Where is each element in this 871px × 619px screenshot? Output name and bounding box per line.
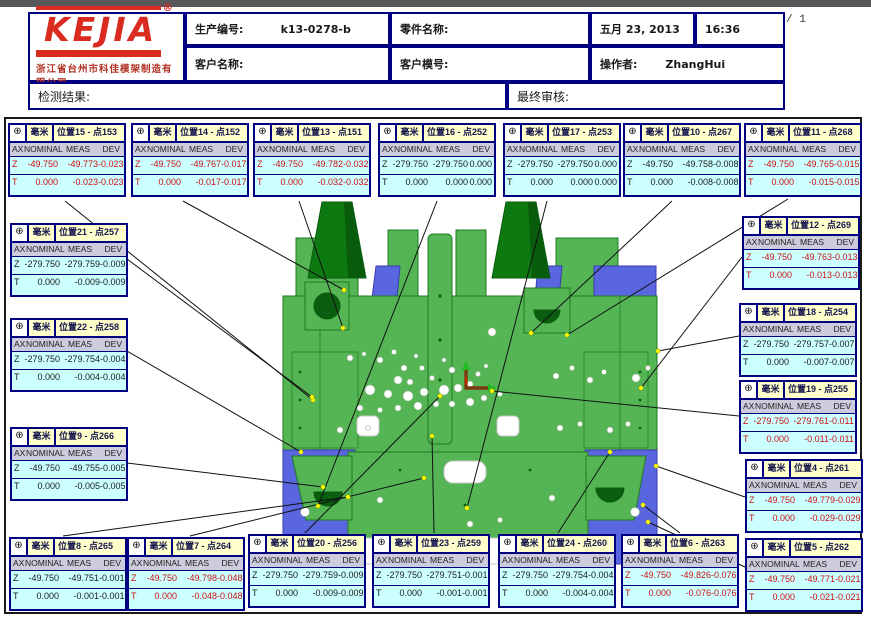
col-nominal: NOMINAL — [26, 338, 68, 351]
measured-value: -0.004 — [60, 370, 100, 387]
unit-label: 毫米 — [764, 540, 791, 556]
measurement-row-t: T 0.000 -0.015 -0.015 — [746, 174, 860, 192]
deviation-value: -0.007 — [829, 337, 857, 354]
measurement-row-t: T 0.000 -0.005 -0.005 — [12, 478, 126, 496]
col-dev: DEV — [104, 243, 126, 256]
deviation-value: -0.009 — [338, 586, 366, 603]
col-dev: DEV — [102, 143, 124, 156]
col-dev: DEV — [225, 143, 247, 156]
nominal-value: 0.000 — [22, 370, 60, 387]
col-dev: DEV — [221, 557, 243, 570]
deviation-value: -0.015 — [834, 157, 862, 174]
measurement-box: ⊕ 毫米 位置6 - 点263 AX NOMINAL MEAS DEV Z -4… — [621, 534, 739, 608]
col-meas: MEAS — [561, 143, 597, 156]
deviation-value: -0.017 — [221, 175, 249, 192]
col-meas: MEAS — [189, 143, 225, 156]
col-nominal: NOMINAL — [761, 479, 803, 492]
measurement-row-z: Z -49.750 -49.798 -0.048 — [129, 570, 243, 588]
col-nominal: NOMINAL — [264, 554, 306, 567]
measurement-box: ⊕ 毫米 位置20 - 点256 AX NOMINAL MEAS DEV Z -… — [248, 534, 366, 608]
col-dev: DEV — [466, 554, 488, 567]
measurement-row-t: T 0.000 -0.023 -0.023 — [10, 174, 124, 192]
measured-value: -279.757 — [789, 337, 829, 354]
column-headers: AX NOMINAL MEAS DEV — [744, 236, 858, 249]
column-headers: AX NOMINAL MEAS DEV — [374, 554, 488, 567]
deviation-value: -0.004 — [588, 586, 616, 603]
deviation-value: -0.008 — [713, 157, 741, 174]
col-dev: DEV — [472, 143, 494, 156]
position-symbol-icon: ⊕ — [10, 125, 27, 141]
col-dev: DEV — [104, 338, 126, 351]
deviation-value: 0.000 — [468, 157, 494, 174]
measured-value: -0.015 — [794, 175, 834, 192]
measured-value: -49.767 — [181, 157, 221, 174]
position-symbol-icon: ⊕ — [741, 305, 758, 321]
measured-value: -49.755 — [60, 461, 100, 478]
position-title: 位置12 - 点269 — [788, 218, 858, 234]
deviation-value: -0.008 — [713, 175, 741, 192]
measured-value: -279.759 — [60, 257, 100, 274]
nominal-value: 0.000 — [754, 268, 792, 285]
measurement-box-header: ⊕ 毫米 位置9 - 点266 — [12, 429, 126, 447]
measurement-box: ⊕ 毫米 位置10 - 点267 AX NOMINAL MEAS DEV Z -… — [623, 123, 741, 197]
measurement-row-z: Z -279.750 -279.754 -0.004 — [500, 567, 614, 585]
nominal-value: -49.750 — [757, 572, 795, 589]
deviation-value: -0.023 — [98, 157, 126, 174]
measurement-boxes-layer: ⊕ 毫米 位置15 - 点153 AX NOMINAL MEAS DEV Z -… — [0, 0, 871, 619]
nominal-value: -279.750 — [384, 568, 422, 585]
unit-label: 毫米 — [28, 539, 55, 555]
measured-value: -0.023 — [58, 175, 98, 192]
unit-label: 毫米 — [758, 382, 785, 398]
axis-name: Z — [250, 568, 260, 585]
axis-name: T — [133, 175, 143, 192]
measurement-box-header: ⊕ 毫米 位置10 - 点267 — [625, 125, 739, 143]
measured-value: -279.754 — [548, 568, 588, 585]
measurement-box-header: ⊕ 毫米 位置15 - 点153 — [10, 125, 124, 143]
nominal-value: 0.000 — [751, 432, 789, 449]
measurement-box: ⊕ 毫米 位置11 - 点268 AX NOMINAL MEAS DEV Z -… — [744, 123, 862, 197]
measurement-row-z: Z -279.750 -279.759 -0.009 — [12, 256, 126, 274]
col-nominal: NOMINAL — [24, 143, 66, 156]
col-ax: AX — [741, 400, 755, 413]
col-meas: MEAS — [802, 143, 838, 156]
measured-value: -49.826 — [671, 568, 711, 585]
col-nominal: NOMINAL — [26, 243, 68, 256]
axis-name: T — [744, 268, 754, 285]
measurement-row-t: T 0.000 -0.032 -0.032 — [255, 174, 369, 192]
nominal-value: 0.000 — [265, 175, 303, 192]
col-nominal: NOMINAL — [25, 557, 67, 570]
col-dev: DEV — [838, 143, 860, 156]
deviation-value: -0.076 — [711, 586, 739, 603]
col-ax: AX — [12, 447, 26, 460]
measurement-row-t: T 0.000 -0.076 -0.076 — [623, 585, 737, 603]
measurement-box: ⊕ 毫米 位置4 - 点261 AX NOMINAL MEAS DEV Z -4… — [745, 459, 863, 533]
unit-label: 毫米 — [763, 125, 790, 141]
measurement-row-t: T 0.000 0.000 0.000 — [505, 174, 619, 192]
col-meas: MEAS — [679, 554, 715, 567]
position-symbol-icon: ⊕ — [11, 539, 28, 555]
axis-name: T — [741, 355, 751, 372]
measured-value: -0.011 — [789, 432, 829, 449]
axis-name: T — [11, 589, 21, 606]
axis-name: T — [746, 175, 756, 192]
measurement-row-z: Z -279.750 -279.750 0.000 — [380, 156, 494, 174]
position-title: 位置23 - 点259 — [418, 536, 488, 552]
position-title: 位置5 - 点262 — [791, 540, 861, 556]
axis-name: Z — [747, 572, 757, 589]
measurement-row-z: Z -279.750 -279.759 -0.009 — [250, 567, 364, 585]
measurement-row-z: Z -49.750 -49.767 -0.017 — [133, 156, 247, 174]
measurement-row-t: T 0.000 -0.001 -0.001 — [374, 585, 488, 603]
col-nominal: NOMINAL — [388, 554, 430, 567]
col-ax: AX — [741, 323, 755, 336]
measurement-box: ⊕ 毫米 位置18 - 点254 AX NOMINAL MEAS DEV Z -… — [739, 303, 857, 377]
measurement-row-z: Z -49.750 -49.758 -0.008 — [625, 156, 739, 174]
column-headers: AX NOMINAL MEAS DEV — [129, 557, 243, 570]
nominal-value: 0.000 — [515, 175, 553, 192]
measurement-row-z: Z -49.750 -49.765 -0.015 — [746, 156, 860, 174]
nominal-value: -49.750 — [143, 157, 181, 174]
position-title: 位置8 - 点265 — [55, 539, 125, 555]
deviation-value: -0.009 — [100, 275, 128, 292]
measurement-box: ⊕ 毫米 位置15 - 点153 AX NOMINAL MEAS DEV Z -… — [8, 123, 126, 197]
measurement-row-t: T 0.000 -0.048 -0.048 — [129, 588, 243, 606]
measurement-box-header: ⊕ 毫米 位置11 - 点268 — [746, 125, 860, 143]
measurement-row-t: T 0.000 -0.021 -0.021 — [747, 589, 861, 607]
nominal-value: -49.750 — [20, 157, 58, 174]
col-meas: MEAS — [306, 554, 342, 567]
axis-name: T — [500, 586, 510, 603]
unit-label: 毫米 — [29, 225, 56, 241]
column-headers: AX NOMINAL MEAS DEV — [500, 554, 614, 567]
col-dev: DEV — [103, 557, 125, 570]
deviation-value: -0.013 — [832, 250, 860, 267]
position-title: 位置24 - 点260 — [544, 536, 614, 552]
position-title: 位置14 - 点152 — [177, 125, 247, 141]
position-title: 位置9 - 点266 — [56, 429, 126, 445]
axis-name: Z — [12, 352, 22, 369]
col-nominal: NOMINAL — [637, 554, 679, 567]
position-symbol-icon: ⊕ — [133, 125, 150, 141]
measurement-box: ⊕ 毫米 位置5 - 点262 AX NOMINAL MEAS DEV Z -4… — [745, 538, 863, 612]
col-meas: MEAS — [556, 554, 592, 567]
col-meas: MEAS — [67, 557, 103, 570]
nominal-value: -49.750 — [21, 571, 59, 588]
measurement-row-z: Z -279.750 -279.750 0.000 — [505, 156, 619, 174]
measurement-box-header: ⊕ 毫米 位置7 - 点264 — [129, 539, 243, 557]
col-ax: AX — [623, 554, 637, 567]
deviation-value: -0.032 — [343, 157, 371, 174]
measurement-row-t: T 0.000 -0.029 -0.029 — [747, 510, 861, 528]
deviation-value: -0.005 — [100, 461, 128, 478]
axis-name: Z — [10, 157, 20, 174]
axis-name: Z — [12, 257, 22, 274]
position-symbol-icon: ⊕ — [500, 536, 517, 552]
col-ax: AX — [12, 338, 26, 351]
nominal-value: -49.750 — [635, 157, 673, 174]
column-headers: AX NOMINAL MEAS DEV — [625, 143, 739, 156]
measurement-box-header: ⊕ 毫米 位置4 - 点261 — [747, 461, 861, 479]
column-headers: AX NOMINAL MEAS DEV — [11, 557, 125, 570]
deviation-value: -0.004 — [100, 370, 128, 387]
axis-name: Z — [500, 568, 510, 585]
col-ax: AX — [250, 554, 264, 567]
col-ax: AX — [11, 557, 25, 570]
col-dev: DEV — [839, 479, 861, 492]
measurement-row-t: T 0.000 -0.004 -0.004 — [500, 585, 614, 603]
measurement-row-z: Z -49.750 -49.773 -0.023 — [10, 156, 124, 174]
nominal-value: -49.750 — [756, 157, 794, 174]
position-title: 位置19 - 点255 — [785, 382, 855, 398]
position-symbol-icon: ⊕ — [255, 125, 272, 141]
measured-value: -0.001 — [59, 589, 99, 606]
column-headers: AX NOMINAL MEAS DEV — [741, 400, 855, 413]
measurement-box-header: ⊕ 毫米 位置24 - 点260 — [500, 536, 614, 554]
position-title: 位置22 - 点258 — [56, 320, 126, 336]
col-ax: AX — [747, 479, 761, 492]
axis-name: Z — [741, 337, 751, 354]
unit-label: 毫米 — [29, 429, 56, 445]
measurement-box-header: ⊕ 毫米 位置21 - 点257 — [12, 225, 126, 243]
measurement-box-header: ⊕ 毫米 位置16 - 点252 — [380, 125, 494, 143]
axis-name: T — [623, 586, 633, 603]
column-headers: AX NOMINAL MEAS DEV — [505, 143, 619, 156]
measurement-box-header: ⊕ 毫米 位置5 - 点262 — [747, 540, 861, 558]
col-nominal: NOMINAL — [639, 143, 681, 156]
measurement-box-header: ⊕ 毫米 位置14 - 点152 — [133, 125, 247, 143]
unit-label: 毫米 — [146, 539, 173, 555]
deviation-value: -0.009 — [338, 568, 366, 585]
deviation-value: -0.023 — [98, 175, 126, 192]
nominal-value: 0.000 — [384, 586, 422, 603]
deviation-value: -0.048 — [217, 571, 245, 588]
nominal-value: -49.750 — [633, 568, 671, 585]
measurement-box-header: ⊕ 毫米 位置23 - 点259 — [374, 536, 488, 554]
col-nominal: NOMINAL — [755, 400, 797, 413]
axis-name: Z — [133, 157, 143, 174]
column-headers: AX NOMINAL MEAS DEV — [255, 143, 369, 156]
column-headers: AX NOMINAL MEAS DEV — [10, 143, 124, 156]
unit-label: 毫米 — [267, 536, 294, 552]
measurement-row-t: T 0.000 -0.008 -0.008 — [625, 174, 739, 192]
measurement-box: ⊕ 毫米 位置14 - 点152 AX NOMINAL MEAS DEV Z -… — [131, 123, 249, 197]
nominal-value: -49.750 — [139, 571, 177, 588]
measured-value: -0.008 — [673, 175, 713, 192]
deviation-value: -0.011 — [829, 414, 856, 431]
col-meas: MEAS — [436, 143, 472, 156]
measurement-box: ⊕ 毫米 位置7 - 点264 AX NOMINAL MEAS DEV Z -4… — [127, 537, 245, 611]
measurement-box: ⊕ 毫米 位置24 - 点260 AX NOMINAL MEAS DEV Z -… — [498, 534, 616, 608]
deviation-value: -0.017 — [221, 157, 249, 174]
col-ax: AX — [10, 143, 24, 156]
position-symbol-icon: ⊕ — [380, 125, 397, 141]
deviation-value: -0.004 — [588, 568, 616, 585]
col-meas: MEAS — [797, 400, 833, 413]
unit-label: 毫米 — [522, 125, 549, 141]
position-symbol-icon: ⊕ — [744, 218, 761, 234]
position-symbol-icon: ⊕ — [625, 125, 642, 141]
measurement-box: ⊕ 毫米 位置17 - 点253 AX NOMINAL MEAS DEV Z -… — [503, 123, 621, 197]
nominal-value: 0.000 — [757, 511, 795, 528]
deviation-value: -0.029 — [835, 511, 863, 528]
col-ax: AX — [625, 143, 639, 156]
measured-value: -49.763 — [792, 250, 832, 267]
position-symbol-icon: ⊕ — [12, 429, 29, 445]
deviation-value: 0.000 — [593, 157, 619, 174]
position-title: 位置16 - 点252 — [424, 125, 494, 141]
position-symbol-icon: ⊕ — [374, 536, 391, 552]
col-nominal: NOMINAL — [147, 143, 189, 156]
deviation-value: -0.001 — [462, 568, 490, 585]
position-title: 位置6 - 点263 — [667, 536, 737, 552]
measured-value: -49.758 — [673, 157, 713, 174]
measured-value: -279.750 — [553, 157, 593, 174]
nominal-value: -49.750 — [22, 461, 60, 478]
unit-label: 毫米 — [27, 125, 54, 141]
measured-value: -0.007 — [789, 355, 829, 372]
axis-name: Z — [380, 157, 390, 174]
position-symbol-icon: ⊕ — [250, 536, 267, 552]
measurement-row-t: T 0.000 -0.013 -0.013 — [744, 267, 858, 285]
deviation-value: 0.000 — [468, 175, 494, 192]
nominal-value: 0.000 — [20, 175, 58, 192]
col-meas: MEAS — [311, 143, 347, 156]
unit-label: 毫米 — [761, 218, 788, 234]
position-title: 位置15 - 点153 — [54, 125, 124, 141]
column-headers: AX NOMINAL MEAS DEV — [380, 143, 494, 156]
measured-value: -0.048 — [177, 589, 217, 606]
measurement-row-z: Z -49.750 -49.779 -0.029 — [747, 492, 861, 510]
measurement-box: ⊕ 毫米 位置12 - 点269 AX NOMINAL MEAS DEV Z -… — [742, 216, 860, 290]
position-symbol-icon: ⊕ — [747, 540, 764, 556]
axis-name: T — [747, 511, 757, 528]
nominal-value: -49.750 — [265, 157, 303, 174]
measurement-row-z: Z -49.750 -49.751 -0.001 — [11, 570, 125, 588]
measurement-row-t: T 0.000 -0.004 -0.004 — [12, 369, 126, 387]
nominal-value: 0.000 — [635, 175, 673, 192]
axis-name: Z — [747, 493, 757, 510]
nominal-value: -279.750 — [22, 257, 60, 274]
col-dev: DEV — [347, 143, 369, 156]
measured-value: -49.771 — [795, 572, 835, 589]
position-symbol-icon: ⊕ — [12, 320, 29, 336]
column-headers: AX NOMINAL MEAS DEV — [12, 243, 126, 256]
nominal-value: 0.000 — [633, 586, 671, 603]
nominal-value: 0.000 — [139, 589, 177, 606]
measurement-box-header: ⊕ 毫米 位置6 - 点263 — [623, 536, 737, 554]
measurement-row-t: T 0.000 -0.009 -0.009 — [250, 585, 364, 603]
unit-label: 毫米 — [517, 536, 544, 552]
position-title: 位置4 - 点261 — [791, 461, 861, 477]
measured-value: -0.009 — [298, 586, 338, 603]
deviation-value: -0.004 — [100, 352, 128, 369]
col-meas: MEAS — [66, 143, 102, 156]
measurement-row-z: Z -49.750 -49.826 -0.076 — [623, 567, 737, 585]
measurement-box-header: ⊕ 毫米 位置13 - 点151 — [255, 125, 369, 143]
unit-label: 毫米 — [764, 461, 791, 477]
axis-name: T — [12, 275, 22, 292]
measured-value: -0.009 — [60, 275, 100, 292]
col-dev: DEV — [836, 236, 858, 249]
axis-name: T — [255, 175, 265, 192]
position-symbol-icon: ⊕ — [747, 461, 764, 477]
measurement-box: ⊕ 毫米 位置16 - 点252 AX NOMINAL MEAS DEV Z -… — [378, 123, 496, 197]
column-headers: AX NOMINAL MEAS DEV — [12, 338, 126, 351]
unit-label: 毫米 — [758, 305, 785, 321]
col-ax: AX — [129, 557, 143, 570]
measurement-box-header: ⊕ 毫米 位置17 - 点253 — [505, 125, 619, 143]
nominal-value: 0.000 — [143, 175, 181, 192]
col-ax: AX — [255, 143, 269, 156]
unit-label: 毫米 — [642, 125, 669, 141]
position-title: 位置13 - 点151 — [299, 125, 369, 141]
position-symbol-icon: ⊕ — [129, 539, 146, 555]
measured-value: -49.798 — [177, 571, 217, 588]
measured-value: -0.029 — [795, 511, 835, 528]
deviation-value: -0.001 — [99, 571, 127, 588]
measurement-row-t: T 0.000 0.000 0.000 — [380, 174, 494, 192]
measured-value: -279.754 — [60, 352, 100, 369]
col-nominal: NOMINAL — [761, 558, 803, 571]
measurement-box-header: ⊕ 毫米 位置12 - 点269 — [744, 218, 858, 236]
nominal-value: 0.000 — [751, 355, 789, 372]
col-ax: AX — [744, 236, 758, 249]
measurement-box-header: ⊕ 毫米 位置19 - 点255 — [741, 382, 855, 400]
measurement-row-t: T 0.000 -0.001 -0.001 — [11, 588, 125, 606]
position-symbol-icon: ⊕ — [746, 125, 763, 141]
axis-name: Z — [505, 157, 515, 174]
deviation-value: -0.013 — [832, 268, 860, 285]
position-title: 位置18 - 点254 — [785, 305, 855, 321]
deviation-value: -0.015 — [834, 175, 862, 192]
measurement-row-t: T 0.000 -0.009 -0.009 — [12, 274, 126, 292]
nominal-value: -279.750 — [390, 157, 428, 174]
measured-value: -49.779 — [795, 493, 835, 510]
deviation-value: -0.032 — [343, 175, 371, 192]
column-headers: AX NOMINAL MEAS DEV — [133, 143, 247, 156]
nominal-value: 0.000 — [756, 175, 794, 192]
measurement-box-header: ⊕ 毫米 位置22 - 点258 — [12, 320, 126, 338]
nominal-value: -279.750 — [515, 157, 553, 174]
nominal-value: 0.000 — [21, 589, 59, 606]
axis-name: T — [741, 432, 751, 449]
measurement-row-z: Z -279.750 -279.754 -0.004 — [12, 351, 126, 369]
deviation-value: -0.048 — [217, 589, 245, 606]
col-nominal: NOMINAL — [394, 143, 436, 156]
col-nominal: NOMINAL — [514, 554, 556, 567]
unit-label: 毫米 — [391, 536, 418, 552]
measured-value: -279.751 — [422, 568, 462, 585]
position-title: 位置20 - 点256 — [294, 536, 364, 552]
axis-name: Z — [12, 461, 22, 478]
nominal-value: -49.750 — [754, 250, 792, 267]
measurement-row-z: Z -279.750 -279.761 -0.011 — [741, 413, 855, 431]
nominal-value: -279.750 — [510, 568, 548, 585]
column-headers: AX NOMINAL MEAS DEV — [623, 554, 737, 567]
measured-value: -279.761 — [789, 414, 829, 431]
measured-value: -0.001 — [422, 586, 462, 603]
nominal-value: 0.000 — [22, 275, 60, 292]
col-meas: MEAS — [681, 143, 717, 156]
column-headers: AX NOMINAL MEAS DEV — [747, 558, 861, 571]
measurement-box: ⊕ 毫米 位置23 - 点259 AX NOMINAL MEAS DEV Z -… — [372, 534, 490, 608]
col-nominal: NOMINAL — [760, 143, 802, 156]
measurement-box: ⊕ 毫米 位置13 - 点151 AX NOMINAL MEAS DEV Z -… — [253, 123, 371, 197]
axis-name: T — [747, 590, 757, 607]
nominal-value: 0.000 — [22, 479, 60, 496]
